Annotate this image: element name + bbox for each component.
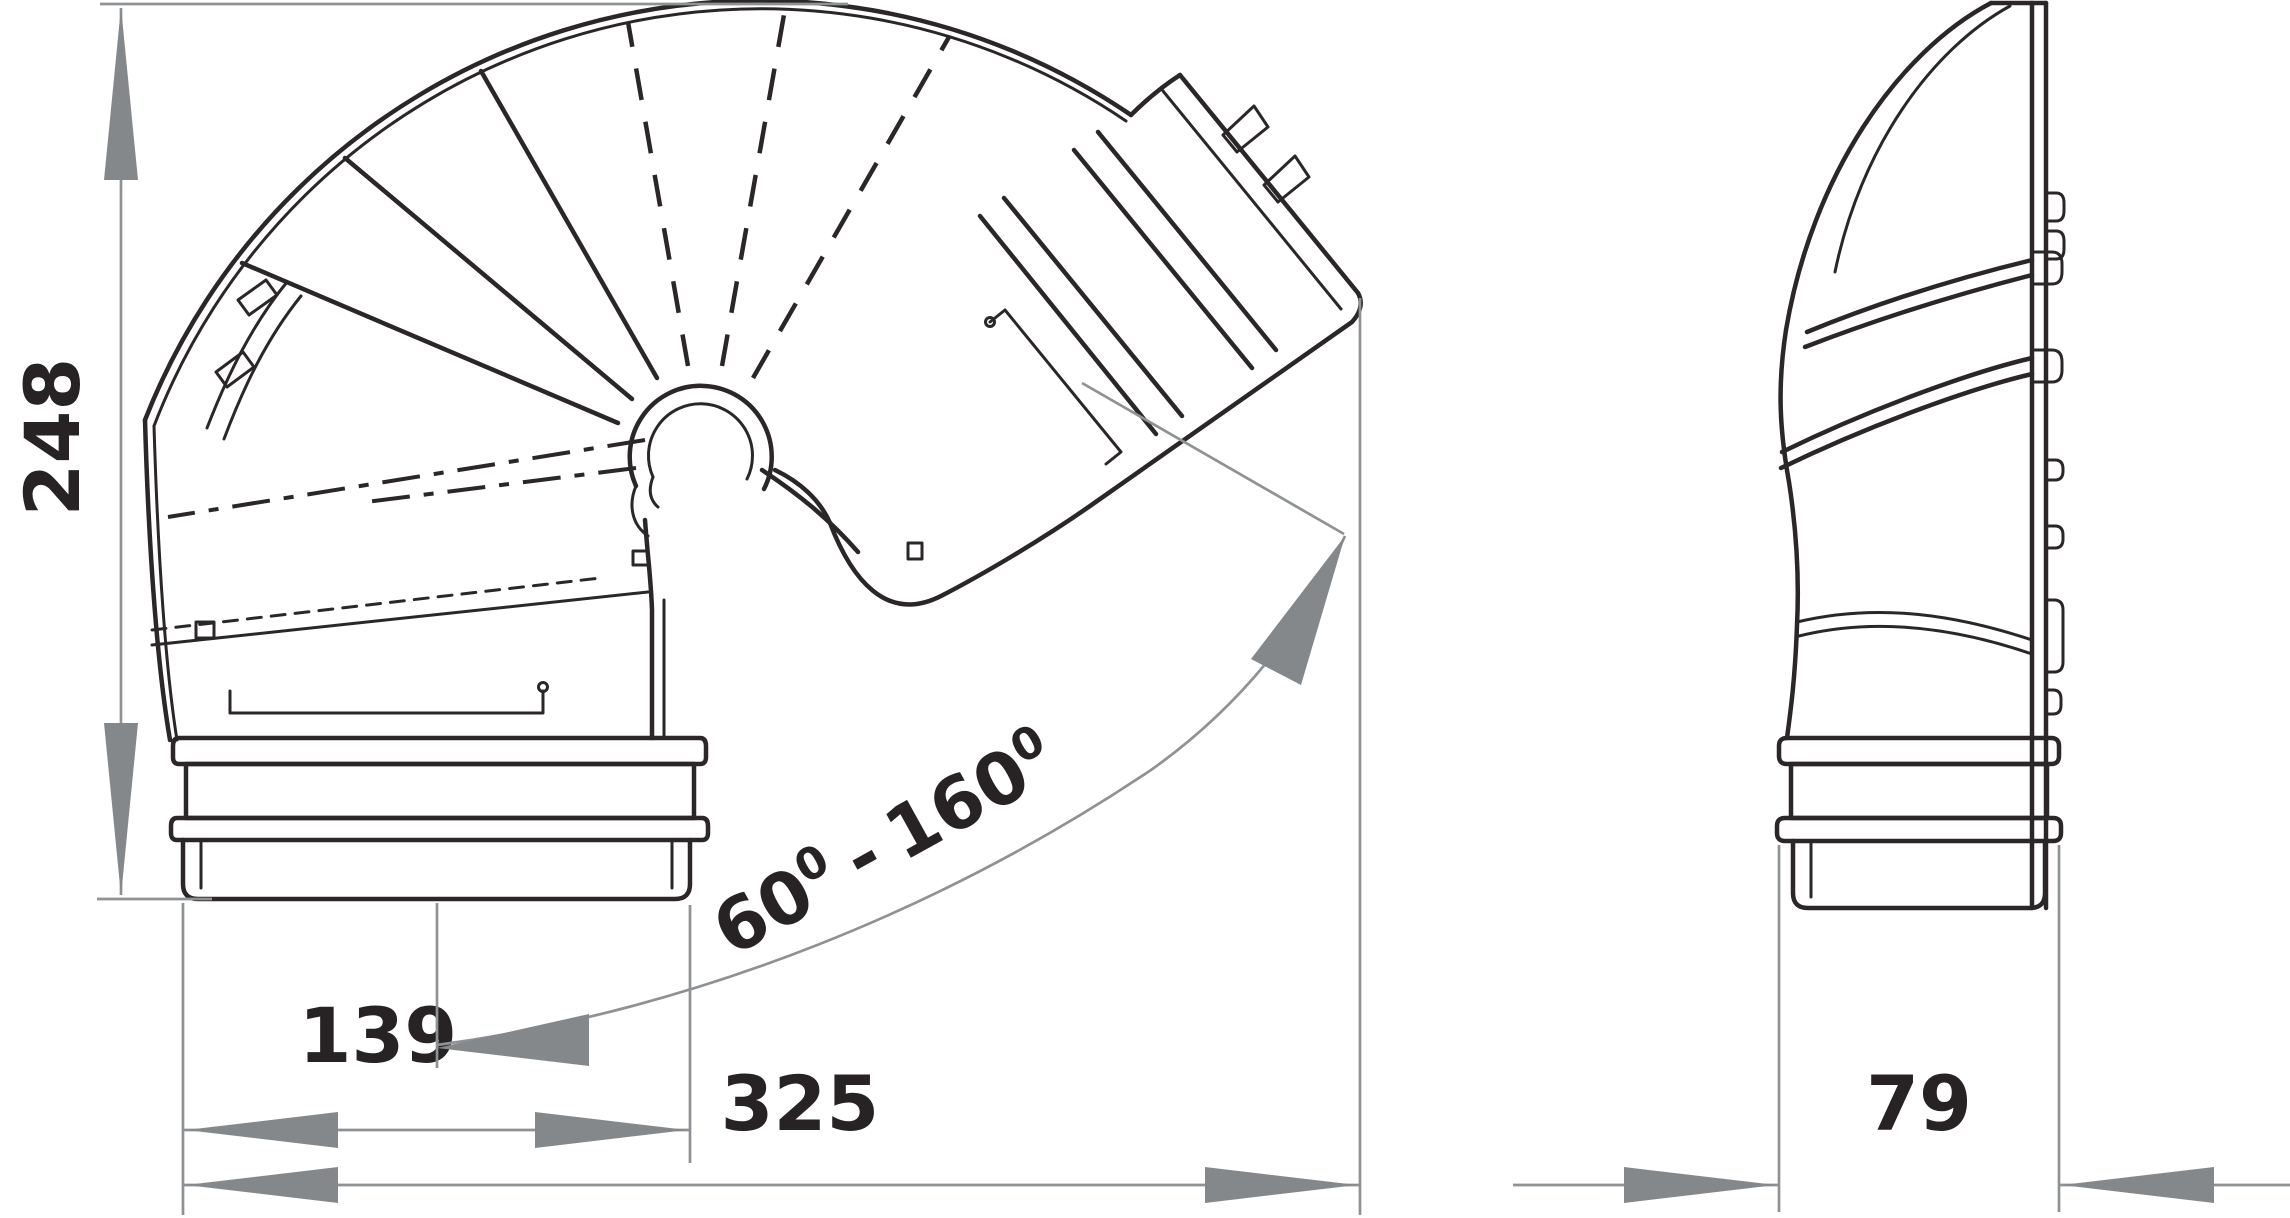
angle-leader-line bbox=[1082, 383, 1344, 534]
bottom-flange-bar-1 bbox=[173, 738, 706, 764]
segment-line-solid-2 bbox=[345, 158, 632, 399]
clamp-tab-upper bbox=[238, 280, 277, 315]
body-left-edge-inner bbox=[154, 426, 177, 740]
elbow-outer-arc bbox=[145, 1, 1131, 420]
segment-line-dashed-1 bbox=[628, 22, 688, 366]
arc-arrow-start-icon bbox=[437, 1014, 589, 1066]
side-clamp-band bbox=[1791, 764, 2047, 818]
dim-label-325: 325 bbox=[721, 1059, 880, 1148]
dimension-depth-79: 79 bbox=[1513, 845, 2290, 1212]
joint-line-dashdot-1 bbox=[168, 440, 645, 517]
side-tab-3 bbox=[2046, 460, 2063, 480]
segment-line-dashed-3 bbox=[753, 37, 949, 378]
angle-arc bbox=[437, 536, 1345, 1045]
arm-end-face bbox=[1180, 75, 1358, 293]
arm-face-tab-2 bbox=[1264, 156, 1309, 202]
side-band-a-bottom bbox=[1805, 275, 2032, 347]
arc-arrow-end-icon bbox=[1251, 536, 1345, 685]
arrow-left-icon bbox=[2062, 1167, 2214, 1203]
arrow-down-icon bbox=[104, 723, 138, 896]
arrow-right-icon bbox=[535, 1112, 687, 1148]
neck-to-arm-curve bbox=[762, 470, 858, 552]
arm-end-face-inner bbox=[1163, 91, 1341, 309]
arm-face-tab-1 bbox=[1223, 106, 1268, 152]
arrow-up-icon bbox=[104, 7, 138, 180]
hub-hook bbox=[650, 477, 658, 507]
body-handle-pin bbox=[539, 683, 548, 692]
body-left-edge-outer bbox=[145, 420, 170, 740]
arm-clamp-band-a1 bbox=[1098, 132, 1276, 350]
segment-line-solid-3 bbox=[242, 263, 618, 423]
bottom-spigot-walls bbox=[201, 840, 672, 888]
hub-inner-arc bbox=[648, 404, 752, 479]
segment-line-solid-1 bbox=[481, 71, 657, 378]
dim-label-79: 79 bbox=[1866, 1059, 1972, 1148]
arrow-right-icon bbox=[1205, 1167, 1357, 1203]
arrow-left-icon bbox=[186, 1112, 338, 1148]
arrow-right-icon bbox=[1624, 1167, 1776, 1203]
arm-clamp-band-b2 bbox=[980, 216, 1156, 434]
side-spigot bbox=[1793, 841, 2045, 908]
side-band-a-top bbox=[1807, 260, 2032, 332]
angle-label: 600-1600 bbox=[698, 715, 1070, 972]
side-tab-2 bbox=[2046, 231, 2064, 259]
segment-line-dashed-2 bbox=[722, 9, 785, 366]
side-tab-4 bbox=[2046, 526, 2063, 548]
side-band-b-bottom bbox=[1781, 374, 2032, 468]
arm-clamp-band-a2 bbox=[1074, 150, 1252, 368]
bottom-spigot bbox=[183, 840, 690, 899]
arm-top-edge bbox=[1131, 75, 1180, 115]
side-silhouette-inner bbox=[1835, 6, 2010, 272]
bottom-flange-bar-2 bbox=[171, 818, 708, 840]
side-latch-bracket bbox=[2046, 600, 2063, 672]
side-flange-bar-2 bbox=[1777, 818, 2061, 841]
side-tab-1 bbox=[2046, 193, 2064, 221]
technical-drawing-canvas: 248 139 325 79 600-1600 bbox=[0, 0, 2290, 1218]
side-band-b-top bbox=[1782, 358, 2032, 452]
arm-rivet bbox=[908, 543, 922, 559]
body-handle-bracket bbox=[230, 691, 543, 713]
bottom-clamp-band bbox=[186, 764, 694, 818]
side-lower-seam-1 bbox=[1797, 612, 2032, 640]
joint-line-dashdot-2 bbox=[366, 468, 636, 502]
arm-lower-edge bbox=[775, 293, 1361, 604]
arm-handle-bracket bbox=[990, 310, 1121, 464]
side-view-adjustable-elbow bbox=[1777, 3, 2064, 908]
dim-label-248: 248 bbox=[8, 358, 97, 517]
elbow-duct-drawing: 248 139 325 79 600-1600 bbox=[0, 0, 2290, 1218]
front-view-adjustable-elbow bbox=[145, 1, 1361, 899]
dim-label-139: 139 bbox=[299, 991, 458, 1080]
dimension-angle-range: 600-1600 bbox=[437, 383, 1345, 1068]
side-flange-bar-1 bbox=[1779, 738, 2059, 764]
arrow-left-icon bbox=[186, 1167, 338, 1203]
arm-clamp-band-b1 bbox=[1004, 198, 1182, 416]
